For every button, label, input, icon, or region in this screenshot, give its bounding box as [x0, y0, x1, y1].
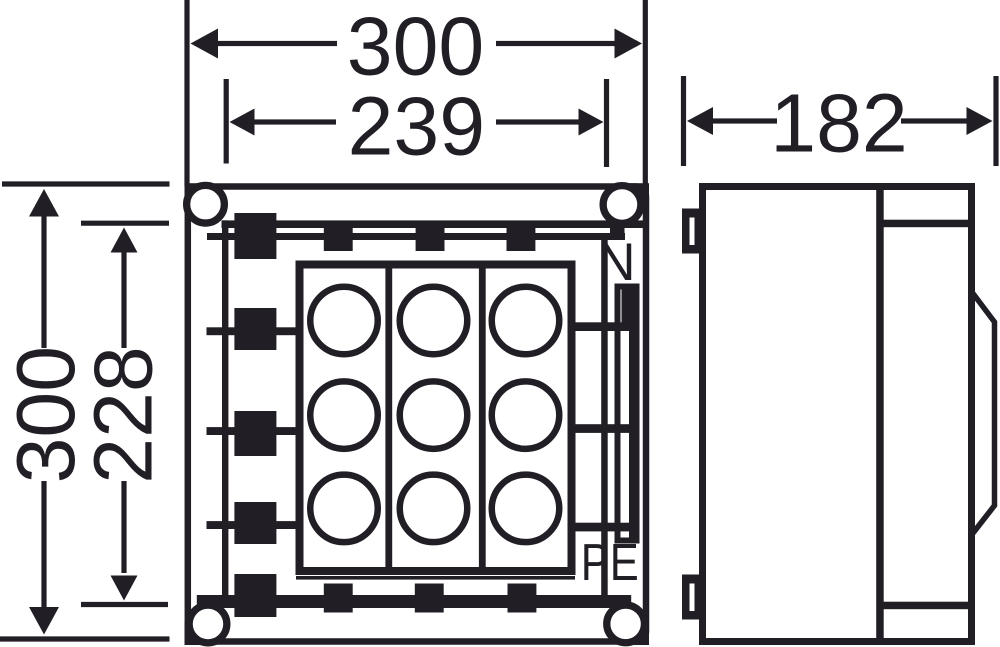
svg-text:239: 239 [348, 81, 485, 173]
svg-text:300: 300 [347, 1, 484, 93]
svg-text:N: N [597, 233, 635, 292]
svg-text:182: 182 [770, 78, 907, 170]
svg-text:PE: PE [581, 534, 639, 592]
svg-text:228: 228 [77, 346, 169, 483]
